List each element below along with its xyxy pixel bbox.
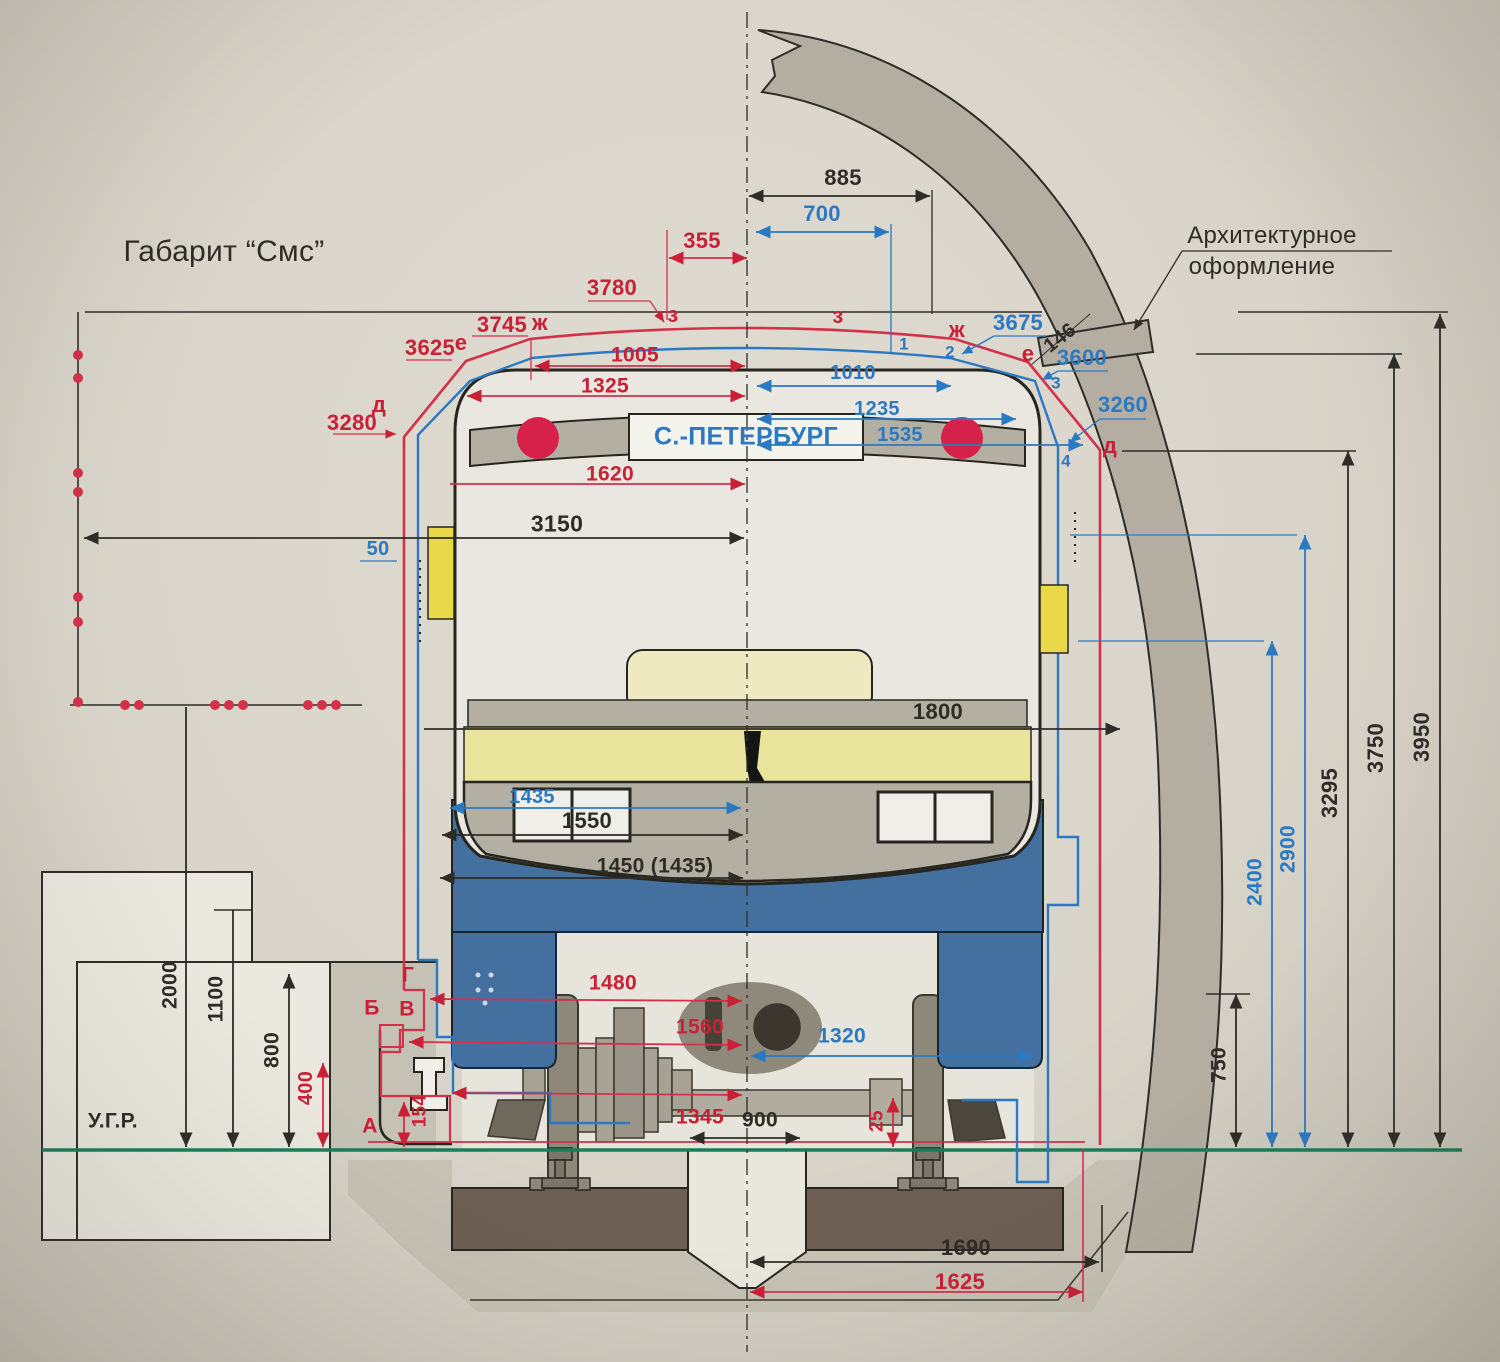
diagram-canvas <box>0 0 1500 1362</box>
headlight-right <box>941 417 983 459</box>
sleeper-right <box>806 1188 1063 1250</box>
side-light-left <box>428 527 454 619</box>
coupler <box>754 1004 800 1050</box>
grille-right <box>878 792 992 842</box>
clearance-diagram-sheet: Габарит “Смс”АрхитектурноеоформлениеС.-П… <box>0 0 1500 1362</box>
shoe-left <box>488 1100 545 1140</box>
sleeper-left <box>452 1188 688 1250</box>
headlight-left <box>517 417 559 459</box>
side-light-right <box>1040 585 1068 653</box>
shoe-right <box>948 1100 1005 1142</box>
rail-left <box>530 1148 590 1190</box>
gearbox <box>614 1008 644 1138</box>
platform-edge-dots <box>73 350 341 710</box>
grille-left <box>514 789 630 841</box>
rail-right <box>898 1148 958 1190</box>
route-sign-box <box>629 414 863 460</box>
